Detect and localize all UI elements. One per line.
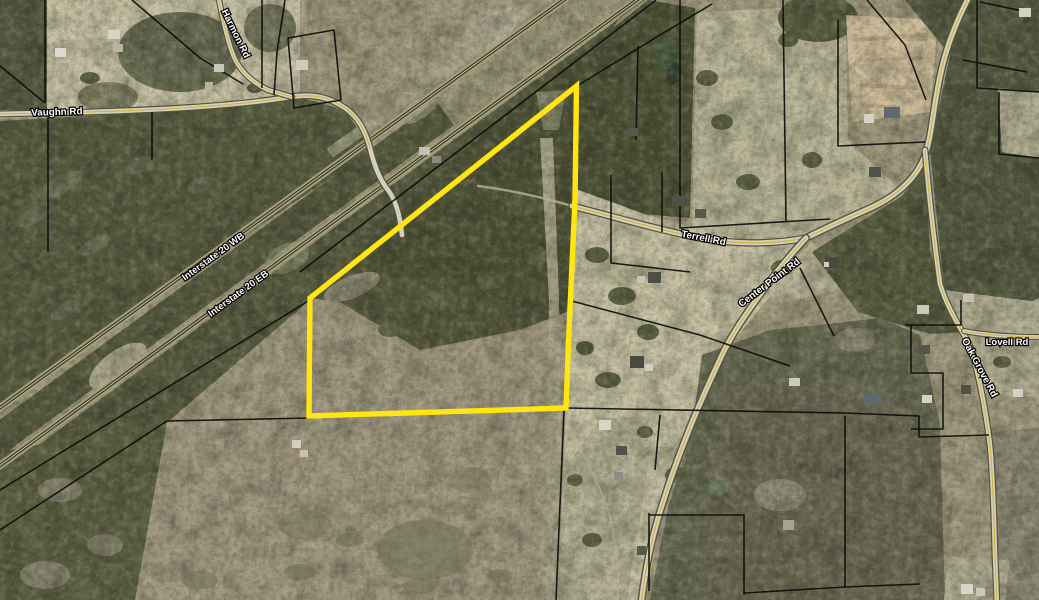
svg-text:Lovell Rd: Lovell Rd bbox=[986, 337, 1029, 348]
svg-text:Vaughn Rd: Vaughn Rd bbox=[31, 106, 83, 119]
